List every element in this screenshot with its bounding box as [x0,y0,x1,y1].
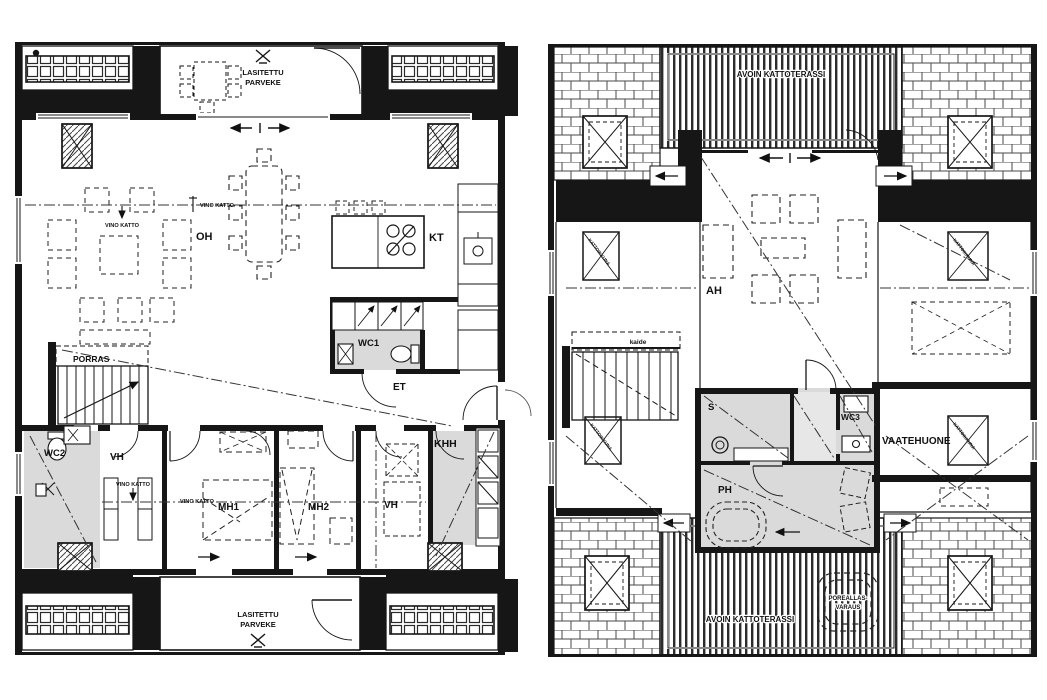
vino-katto-label-4: VINO KATTO [180,499,215,505]
balcony-top-right [388,43,498,90]
vino-katto-label-3: VINO KATTO [116,482,151,488]
terrace-bottom-label: AVOIN KATTOTERASSI [706,615,794,624]
floorplan-page: LASITETTU PARVEKE OH KT WC1 ET PORRAS WC… [0,0,1047,700]
room-label-vh2: VH [384,500,398,511]
poreallas-label-line2: VARAUS [836,605,861,611]
balcony-bottom-label-line1: LASITETTU [237,610,278,619]
vino-katto-label-2: VINO KATTO [200,203,235,209]
balcony-label-line2: PARVEKE [245,78,281,87]
room-label-mh1: MH1 [218,502,240,513]
room-label-mh2: MH2 [308,502,330,513]
room-label-ph: PH [718,485,732,496]
room-label-vaatehuone: VAATEHUONE [882,436,951,447]
room-label-et: ET [393,382,406,393]
room-label-ah: AH [706,285,722,297]
balcony-top-left [22,43,133,90]
poreallas-label-line1: POREALLAS- [829,596,868,602]
balcony-bottom-right [386,593,498,650]
toilet-icon [391,345,419,363]
vino-katto-label-1: VINO KATTO [105,223,140,229]
balcony-label-line1: LASITETTU [242,68,283,77]
balcony-bottom-label-line2: PARVEKE [240,620,276,629]
room-label-vh: VH [110,452,124,463]
room-label-khh: KHH [434,438,457,450]
room-label-wc1: WC1 [358,338,380,349]
room-label-kt: KT [429,232,444,244]
cabinet-row [332,302,423,330]
room-label-porras: PORRAS [73,354,110,364]
floor-plan-lower: LASITETTU PARVEKE OH KT WC1 ET PORRAS WC… [14,42,531,655]
kaide-label: kaide [630,339,647,346]
floorplan-canvas: LASITETTU PARVEKE OH KT WC1 ET PORRAS WC… [0,0,1047,700]
room-label-wc2: WC2 [44,448,65,459]
room-label-wc3: WC3 [841,412,860,422]
balcony-bottom-left [22,593,133,650]
kitchen-counter [458,184,498,370]
floor-plan-upper: KATTOIKKUNA KATTOIKKUNA KATTOIKKUNA KATT… [547,44,1038,657]
room-label-s: S [708,402,714,413]
terrace-top-label: AVOIN KATTOTERASSI [737,70,825,79]
room-label-oh: OH [196,231,213,243]
